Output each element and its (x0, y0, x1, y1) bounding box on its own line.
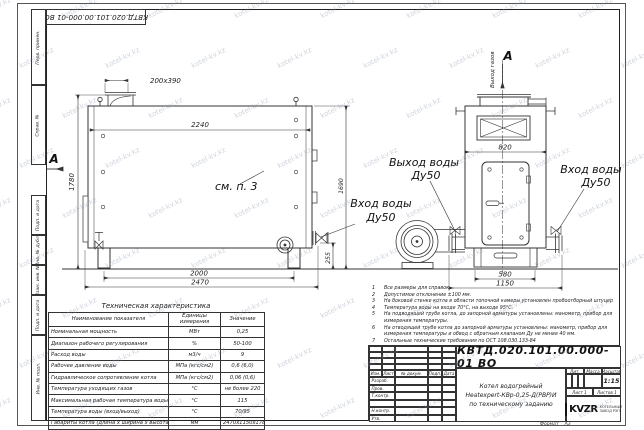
leader-water-outlet (430, 181, 456, 233)
dim-support-span: 2000 (190, 270, 208, 278)
kvzr-logo-subtext: КОТЕЛЬНЫЙ ЗАВОД РЭП (600, 405, 622, 414)
see-note-label: см. п. 3 (215, 180, 258, 193)
note-item: 5На подводящей трубе котла, до запорной … (372, 312, 618, 325)
drawing-name: Котел водогрейный Heatexpert-КВр-0,25-Д(… (456, 368, 566, 422)
title-block: Изм.Лист№ докум.Подп.ДатаРазраб.Пров.Т.к… (368, 345, 620, 421)
water-outlet-dn: Ду50 (410, 169, 440, 182)
doc-number: КВТД.020.101.00.000-01 ВО (456, 346, 621, 368)
sheets-cell: Листов 1 (593, 388, 621, 396)
sheet-value: 1 (584, 390, 587, 395)
tech-table-row: Габариты котла (длина х ширина х высота)… (49, 418, 265, 429)
format-note: Формат А3 (540, 422, 571, 427)
dimension-lines (47, 81, 562, 292)
dim-pipe-axis-height: 255 (325, 252, 332, 264)
technical-notes: 1Все размеры для справок2Допустимое откл… (372, 286, 618, 345)
furnace-door (482, 162, 531, 245)
section-label-left: А (48, 152, 58, 166)
tech-table-row: Гидравлическое сопротивление котлаМПа (к… (49, 372, 265, 383)
bolt-marks (101, 118, 298, 209)
chimney-stub (105, 93, 136, 107)
kvzr-logo-mark (565, 403, 567, 416)
name-line-3: по техническому заданию (469, 400, 552, 409)
tech-table: Наименование показателяЕдиницы измерения… (48, 312, 265, 430)
sheets-value: 1 (614, 390, 617, 395)
lifting-lugs-front (456, 107, 555, 115)
dim-body-height: 1690 (338, 178, 345, 194)
water-inlet-flange (546, 227, 562, 254)
tech-characteristics: Техническая характеристика Наименование … (48, 302, 264, 430)
note-item: 6На отводящей трубе котла до запорной ар… (372, 326, 618, 339)
note-item: 3На боковой стенке котла в области топоч… (372, 299, 618, 306)
blower-fan (396, 221, 465, 269)
tech-table-row: Номинальная мощностьМВт0,25 (49, 327, 265, 338)
side-pipe (83, 196, 88, 242)
water-outlet-label: Выход воды (389, 156, 459, 169)
sheet-label: Лист (572, 390, 583, 395)
support-frame (474, 248, 537, 267)
tech-table-row: Расход водым3/ч9 (49, 349, 265, 360)
support-leg (98, 248, 110, 268)
gas-outlet-collar (477, 95, 546, 107)
water-inlet-left-label: Вход воды (350, 197, 412, 210)
kvzr-logo-text: KVZR (569, 404, 597, 415)
leader-water-inlet-right (557, 189, 584, 232)
dim-top-width: 820 (498, 144, 512, 152)
tech-table-row: Температура уходящих газов°Сне более 220 (49, 383, 265, 394)
flange-circle (277, 237, 293, 253)
leader-water-inlet-left (321, 224, 355, 237)
door-handle (486, 201, 499, 206)
note-item: 1Все размеры для справок (372, 286, 618, 293)
mass-cell (584, 374, 602, 388)
water-inlet-right-label: Вход воды (560, 163, 622, 176)
tech-table-row: Температура воды (вход/выход)°С70/95 (49, 406, 265, 417)
dim-base-width: 580 (498, 271, 512, 279)
sheet-cell: Лист 1 (566, 388, 593, 396)
tech-table-header: Значение (221, 313, 265, 327)
tech-table-header: Единицы измерения (169, 313, 221, 327)
tech-table-row: Диапазон рабочего регулирования%50-100 (49, 338, 265, 349)
tech-table-row: Максимальная рабочая температура воды°С1… (49, 395, 265, 406)
kvzr-logo: KVZR КОТЕЛЬНЫЙ ЗАВОД РЭП (566, 396, 621, 422)
section-label-top: А (502, 49, 512, 63)
water-inlet-left-dn: Ду50 (365, 211, 395, 224)
water-inlet-right-dn: Ду50 (580, 176, 610, 189)
name-line-1: Котел водогрейный (480, 382, 543, 391)
drawing-sheet: КВТД.020.101.00.000-01 ВО Перв. примен.С… (0, 0, 644, 430)
drawing-texts: 2240 200х390 1780 2000 2470 255 1690 820… (48, 49, 622, 288)
scale-value: 1:15 (602, 374, 621, 388)
tech-table-title: Техническая характеристика (48, 302, 264, 310)
water-outlet-flange (449, 227, 465, 254)
name-line-2: Heatexpert-КВр-0,25-Д(РВР)И (465, 391, 556, 400)
hatch-panel (477, 116, 530, 140)
tech-table-row: Рабочее давление водыМПа (кгс/см2)0,6 (6… (49, 361, 265, 372)
tech-table-header: Наименование показателя (49, 313, 169, 327)
dim-boiler-height: 1780 (68, 173, 76, 191)
dim-chimney-cutout: 200х390 (150, 77, 181, 85)
gas-outlet-label: Выход газов (490, 51, 496, 88)
drain-valve (95, 232, 103, 249)
dim-boiler-length: 2240 (191, 121, 209, 129)
sheets-label: Листов (597, 390, 613, 395)
lifting-lugs-side (98, 97, 298, 106)
dim-overall-length: 2470 (191, 279, 209, 287)
